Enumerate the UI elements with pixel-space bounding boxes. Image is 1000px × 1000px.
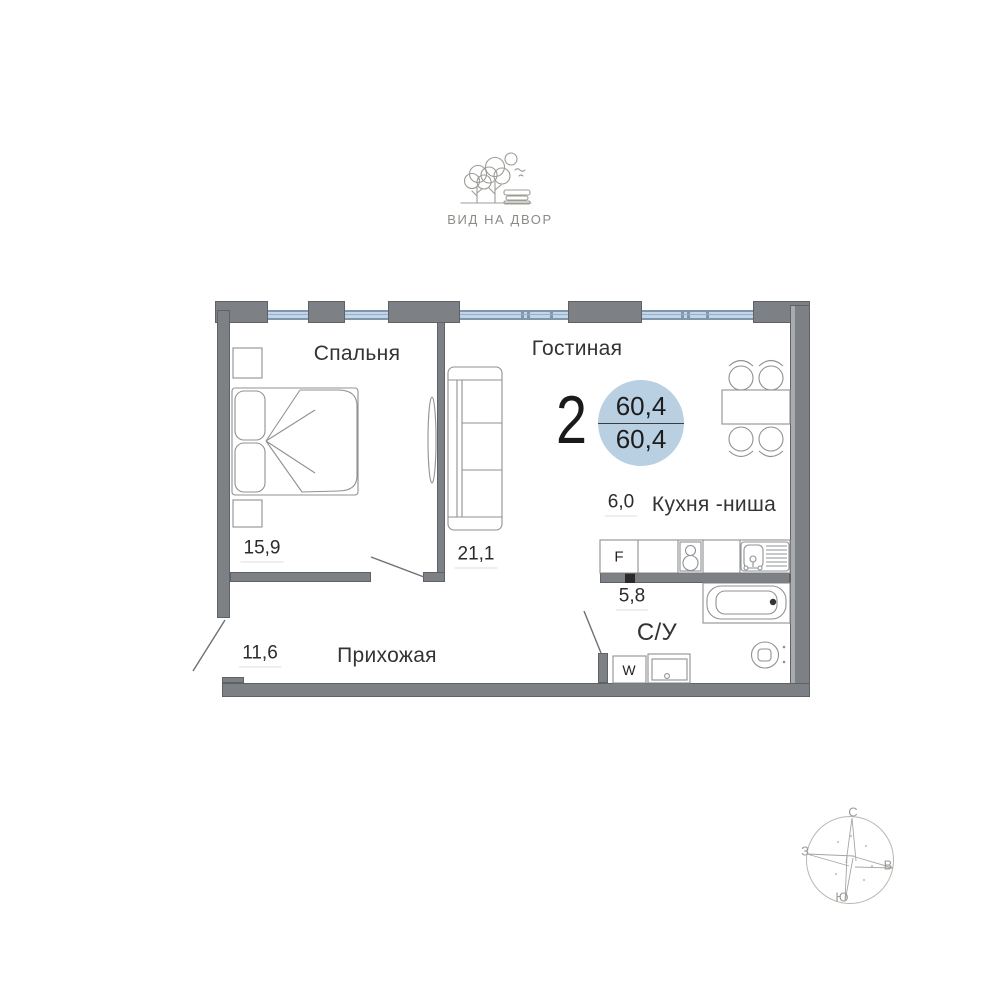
window xyxy=(460,310,568,320)
wall-right xyxy=(790,305,810,697)
yard-view-label: ВИД НА ДВОР xyxy=(447,212,553,227)
compass-east: В xyxy=(884,858,893,873)
compass-north: С xyxy=(848,805,857,820)
entry-door-leaf xyxy=(193,620,225,671)
wall-core xyxy=(625,573,635,583)
room-label-hall: Прихожая xyxy=(337,644,437,668)
dining-table-icon xyxy=(722,390,790,424)
room-label-bathroom: С/У xyxy=(637,619,677,647)
area-badge: 60,4 60,4 xyxy=(598,380,684,466)
wall xyxy=(388,301,460,323)
bath-door-leaf xyxy=(584,611,601,653)
total-area: 60,4 xyxy=(616,392,667,422)
compass-south: Ю xyxy=(835,890,848,905)
yard-view-icon xyxy=(0,0,1000,1000)
wall-left xyxy=(217,310,230,618)
bed-icon xyxy=(232,348,358,527)
room-area-living: 21,1 xyxy=(455,544,498,569)
bedroom-door-leaf xyxy=(371,557,424,577)
wall-bottom xyxy=(222,683,810,697)
wall xyxy=(568,301,642,323)
room-area-bathroom: 5,8 xyxy=(616,586,648,611)
furniture-layer xyxy=(0,0,1000,1000)
wall-partition xyxy=(437,322,445,582)
wall-bath-stub xyxy=(598,653,608,683)
wall xyxy=(308,301,345,323)
bird-icon xyxy=(515,169,525,172)
room-area-kitchen: 6,0 xyxy=(605,492,637,517)
window xyxy=(345,310,388,320)
living-area: 60,4 xyxy=(616,425,667,455)
sun-icon xyxy=(505,153,517,165)
bird-icon xyxy=(519,175,523,176)
room-label-bedroom: Спальня xyxy=(314,342,400,366)
vanity-icon xyxy=(648,654,690,683)
room-label-living: Гостиная xyxy=(532,337,623,361)
chair-icon xyxy=(729,361,783,457)
sink-icon xyxy=(741,542,789,571)
rooms-count: 2 xyxy=(556,386,587,454)
room-area-hall: 11,6 xyxy=(239,643,281,668)
sofa-icon xyxy=(448,367,502,530)
room-label-kitchen: Кухня -ниша xyxy=(652,493,776,517)
compass-rose-icon xyxy=(0,0,1000,1000)
fridge-label: F xyxy=(614,549,623,566)
window xyxy=(642,310,753,320)
floor-plan-page: ВИД НА ДВОР xyxy=(0,0,1000,1000)
tv-icon xyxy=(428,397,436,483)
wall xyxy=(423,572,445,582)
bathtub-icon xyxy=(703,583,790,623)
toilet-icon xyxy=(752,642,786,668)
kitchen-counter-icon xyxy=(600,540,790,573)
compass-west: З xyxy=(801,844,809,859)
wall-bedroom xyxy=(230,572,371,582)
wall xyxy=(222,677,244,683)
window xyxy=(268,310,308,320)
stove-icon xyxy=(680,542,701,571)
washer-label: W xyxy=(622,662,635,678)
room-area-bedroom: 15,9 xyxy=(241,538,284,563)
